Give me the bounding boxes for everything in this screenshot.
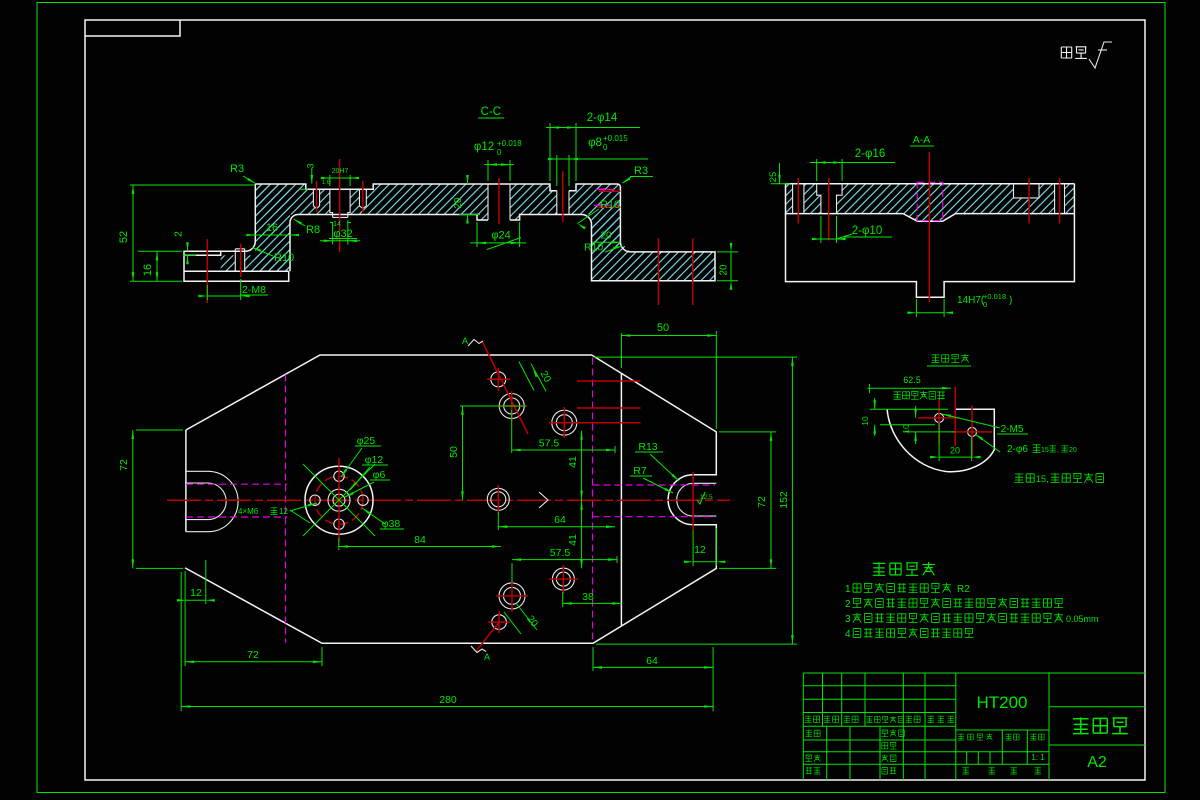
svg-text:R10: R10	[600, 199, 620, 211]
svg-text:+0.018: +0.018	[497, 139, 522, 148]
svg-text:2-φ6: 2-φ6	[1007, 444, 1028, 455]
svg-text:φ6: φ6	[373, 469, 386, 481]
svg-text:64: 64	[554, 514, 566, 526]
svg-text:2-M8: 2-M8	[242, 284, 266, 296]
svg-text:R7: R7	[633, 465, 647, 477]
svg-text:φ24: φ24	[491, 230, 510, 242]
svg-text:2-φ14: 2-φ14	[587, 112, 618, 124]
svg-text:41: 41	[567, 534, 579, 546]
svg-text:1.6: 1.6	[322, 180, 331, 186]
svg-text:1: 1	[845, 584, 851, 595]
svg-text:0.05mm: 0.05mm	[1066, 614, 1099, 624]
svg-text:10: 10	[860, 416, 870, 426]
svg-text:2-φ10: 2-φ10	[852, 225, 882, 237]
svg-text:φ8: φ8	[588, 137, 602, 149]
svg-text:0: 0	[497, 148, 502, 157]
svg-text:φ12: φ12	[365, 454, 384, 466]
svg-text:20: 20	[600, 231, 612, 242]
svg-text:3: 3	[845, 614, 851, 625]
svg-text:16: 16	[142, 264, 154, 276]
svg-text:φ25: φ25	[357, 435, 376, 447]
svg-text:1: 1: 1: 1	[1031, 753, 1045, 762]
svg-text:R13: R13	[638, 441, 657, 453]
svg-text:2-φ16: 2-φ16	[855, 148, 885, 160]
svg-text:20: 20	[1069, 447, 1077, 454]
svg-text:R3: R3	[634, 165, 648, 177]
svg-text:57.5: 57.5	[550, 547, 571, 559]
svg-text:50: 50	[657, 322, 669, 334]
svg-text:62.5: 62.5	[903, 375, 921, 385]
svg-text:+0.015: +0.015	[603, 134, 628, 143]
svg-text:20: 20	[719, 264, 730, 276]
svg-text:72: 72	[118, 459, 130, 471]
svg-text:,: ,	[1057, 447, 1059, 454]
svg-text:0: 0	[603, 143, 608, 152]
svg-text:14: 14	[333, 221, 341, 228]
svg-text:20: 20	[950, 446, 960, 456]
svg-text:15,: 15,	[1036, 474, 1049, 484]
svg-text:φ12: φ12	[474, 141, 494, 153]
svg-text:4×M6: 4×M6	[238, 507, 259, 516]
svg-text:64: 64	[646, 655, 658, 667]
svg-text:A-A: A-A	[913, 134, 931, 146]
svg-text:15: 15	[1041, 447, 1049, 454]
svg-text:R8: R8	[306, 224, 320, 236]
svg-text:): )	[1009, 295, 1012, 306]
svg-text:2: 2	[845, 599, 851, 610]
svg-text:2-M5: 2-M5	[1001, 424, 1024, 435]
svg-text:C-C: C-C	[481, 106, 501, 118]
svg-text:A2: A2	[1087, 754, 1107, 771]
svg-text:A: A	[462, 336, 468, 346]
svg-text:20H7: 20H7	[332, 168, 349, 175]
svg-text:41: 41	[567, 456, 579, 468]
svg-text:38: 38	[582, 591, 594, 603]
svg-text:R10: R10	[584, 242, 603, 254]
svg-text:152: 152	[778, 491, 790, 509]
svg-text:280: 280	[439, 694, 457, 706]
svg-text:A: A	[484, 652, 490, 662]
svg-text:52: 52	[118, 231, 130, 243]
svg-text:12: 12	[279, 507, 288, 516]
svg-text:HT200: HT200	[976, 693, 1027, 712]
svg-text:R2: R2	[957, 584, 970, 595]
svg-text:84: 84	[414, 534, 426, 546]
svg-text:R10: R10	[274, 252, 294, 264]
svg-text:72: 72	[756, 496, 768, 508]
svg-text:25: 25	[768, 172, 779, 183]
svg-text:72: 72	[247, 649, 259, 661]
svg-text:12: 12	[190, 587, 202, 599]
svg-text:14H7(: 14H7(	[957, 295, 985, 306]
svg-text:0: 0	[983, 300, 987, 309]
svg-text:4: 4	[845, 629, 851, 640]
svg-text:20: 20	[453, 197, 464, 209]
svg-text:3: 3	[306, 163, 316, 168]
svg-text:R3: R3	[230, 163, 244, 175]
svg-text:57.5: 57.5	[539, 438, 560, 450]
svg-text:16: 16	[266, 222, 278, 234]
svg-text:50: 50	[448, 446, 460, 458]
svg-text:12: 12	[694, 544, 706, 556]
svg-text:2: 2	[174, 231, 185, 237]
